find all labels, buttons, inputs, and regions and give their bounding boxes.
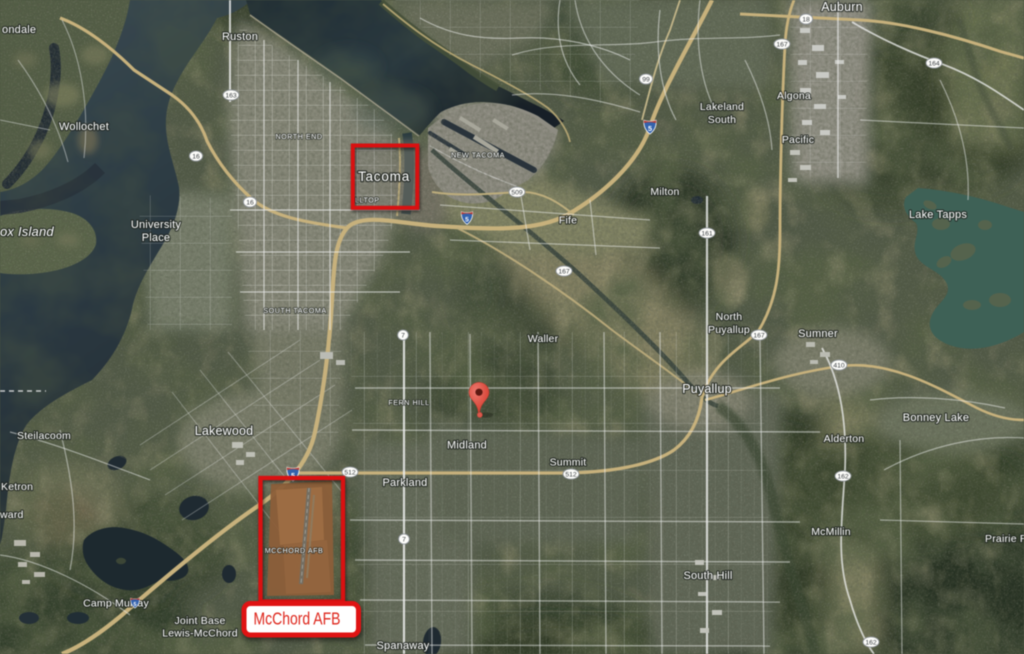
svg-text:Algona: Algona [777, 90, 811, 102]
svg-text:Ketron: Ketron [1, 481, 33, 493]
svg-text:Wollochet: Wollochet [59, 121, 109, 133]
svg-text:Joint Base: Joint Base [174, 615, 225, 627]
svg-text:Midland: Midland [447, 440, 487, 452]
svg-text:University: University [131, 219, 182, 231]
svg-text:Bonney Lake: Bonney Lake [903, 412, 969, 424]
svg-text:South Hill: South Hill [683, 570, 732, 582]
svg-text:McChord AFB: McChord AFB [254, 609, 341, 629]
svg-text:Lakewood: Lakewood [195, 424, 254, 438]
svg-text:512: 512 [344, 469, 356, 476]
svg-text:16: 16 [246, 199, 254, 206]
svg-text:164: 164 [928, 60, 940, 67]
svg-text:512: 512 [565, 471, 577, 478]
svg-text:Fife: Fife [559, 215, 577, 227]
svg-text:Summit: Summit [550, 457, 587, 469]
svg-text:North: North [716, 311, 743, 323]
svg-text:Lakeland: Lakeland [700, 101, 744, 113]
svg-text:Alderton: Alderton [824, 433, 865, 445]
svg-text:Sumner: Sumner [798, 328, 838, 340]
svg-text:McMillin: McMillin [811, 526, 851, 538]
svg-text:Place: Place [142, 232, 171, 244]
svg-text:ILLTOP: ILLTOP [353, 196, 380, 205]
svg-text:MCCHORD AFB: MCCHORD AFB [265, 546, 324, 555]
svg-text:162: 162 [865, 639, 877, 646]
svg-text:Lake Tapps: Lake Tapps [909, 209, 967, 221]
svg-text:Prairie Ridge: Prairie Ridge [985, 533, 1024, 545]
svg-text:ox Island: ox Island [0, 224, 54, 239]
svg-text:410: 410 [833, 362, 845, 369]
svg-text:7: 7 [402, 536, 406, 543]
svg-text:163: 163 [225, 92, 237, 99]
svg-text:5: 5 [465, 217, 469, 224]
svg-text:Ruston: Ruston [222, 31, 258, 43]
svg-text:16: 16 [192, 153, 200, 160]
svg-text:SOUTH TACOMA: SOUTH TACOMA [263, 306, 326, 315]
svg-text:7: 7 [401, 332, 405, 339]
svg-text:167: 167 [753, 332, 765, 339]
svg-text:ward: ward [0, 509, 24, 521]
svg-text:South: South [708, 114, 736, 126]
svg-text:18: 18 [802, 16, 810, 23]
svg-text:167: 167 [558, 268, 570, 275]
svg-text:Spanaway: Spanaway [377, 640, 430, 652]
svg-text:Milton: Milton [650, 186, 679, 198]
svg-text:Pacific: Pacific [782, 134, 814, 146]
svg-text:Auburn: Auburn [821, 0, 863, 14]
svg-text:167: 167 [776, 41, 788, 48]
svg-text:FERN HILL: FERN HILL [388, 398, 429, 407]
svg-text:NORTH END: NORTH END [275, 132, 322, 141]
svg-text:Puyallup: Puyallup [682, 382, 732, 396]
svg-text:5: 5 [134, 602, 137, 608]
svg-text:Parkland: Parkland [382, 477, 427, 489]
svg-text:Waller: Waller [528, 333, 559, 345]
svg-text:5: 5 [648, 124, 652, 133]
svg-text:509: 509 [511, 189, 523, 196]
svg-text:Lewis-McChord: Lewis-McChord [162, 628, 238, 640]
svg-text:Steilacoom: Steilacoom [17, 430, 71, 442]
svg-text:99: 99 [642, 76, 650, 83]
svg-text:NEW TACOMA: NEW TACOMA [451, 151, 505, 160]
svg-text:162: 162 [837, 473, 849, 480]
svg-text:161: 161 [701, 230, 713, 237]
svg-text:Tacoma: Tacoma [358, 169, 410, 184]
svg-text:ondale: ondale [2, 24, 36, 36]
svg-text:Puyallup: Puyallup [708, 324, 750, 336]
